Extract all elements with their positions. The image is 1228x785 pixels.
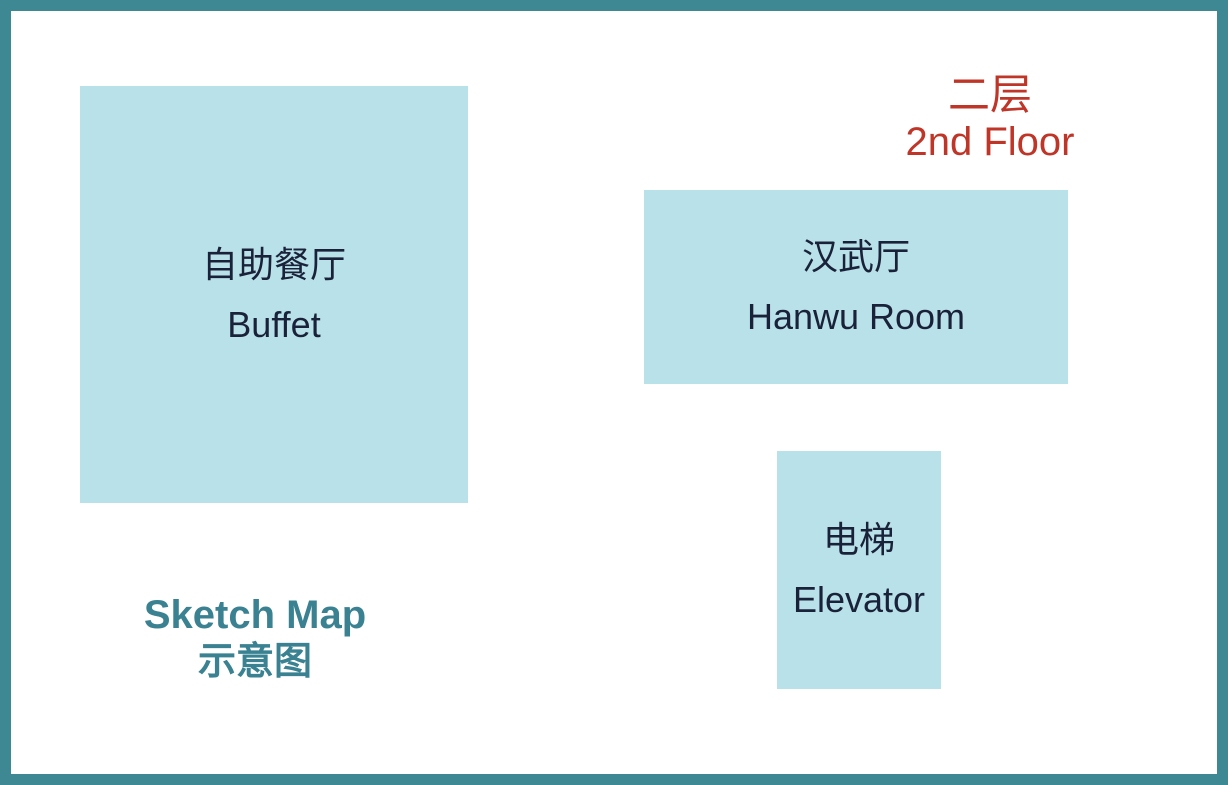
floor-title-zh: 二层	[840, 72, 1140, 118]
legend-label-en: Sketch Map	[105, 592, 405, 638]
floor-title: 二层 2nd Floor	[840, 72, 1140, 166]
room-buffet: 自助餐厅 Buffet	[80, 86, 468, 503]
room-hanwu-label-zh: 汉武厅	[802, 239, 910, 275]
room-elevator-label-zh: 电梯	[823, 522, 895, 558]
room-elevator-label-en: Elevator	[793, 582, 925, 618]
sketch-map-legend: Sketch Map 示意图	[105, 592, 405, 687]
room-buffet-label-zh: 自助餐厅	[202, 247, 346, 283]
room-buffet-label-en: Buffet	[227, 307, 320, 343]
legend-label-zh: 示意图	[105, 638, 405, 687]
room-elevator: 电梯 Elevator	[777, 451, 941, 689]
room-hanwu: 汉武厅 Hanwu Room	[644, 190, 1068, 384]
room-hanwu-label-en: Hanwu Room	[747, 299, 965, 335]
floor-title-en: 2nd Floor	[840, 118, 1140, 166]
